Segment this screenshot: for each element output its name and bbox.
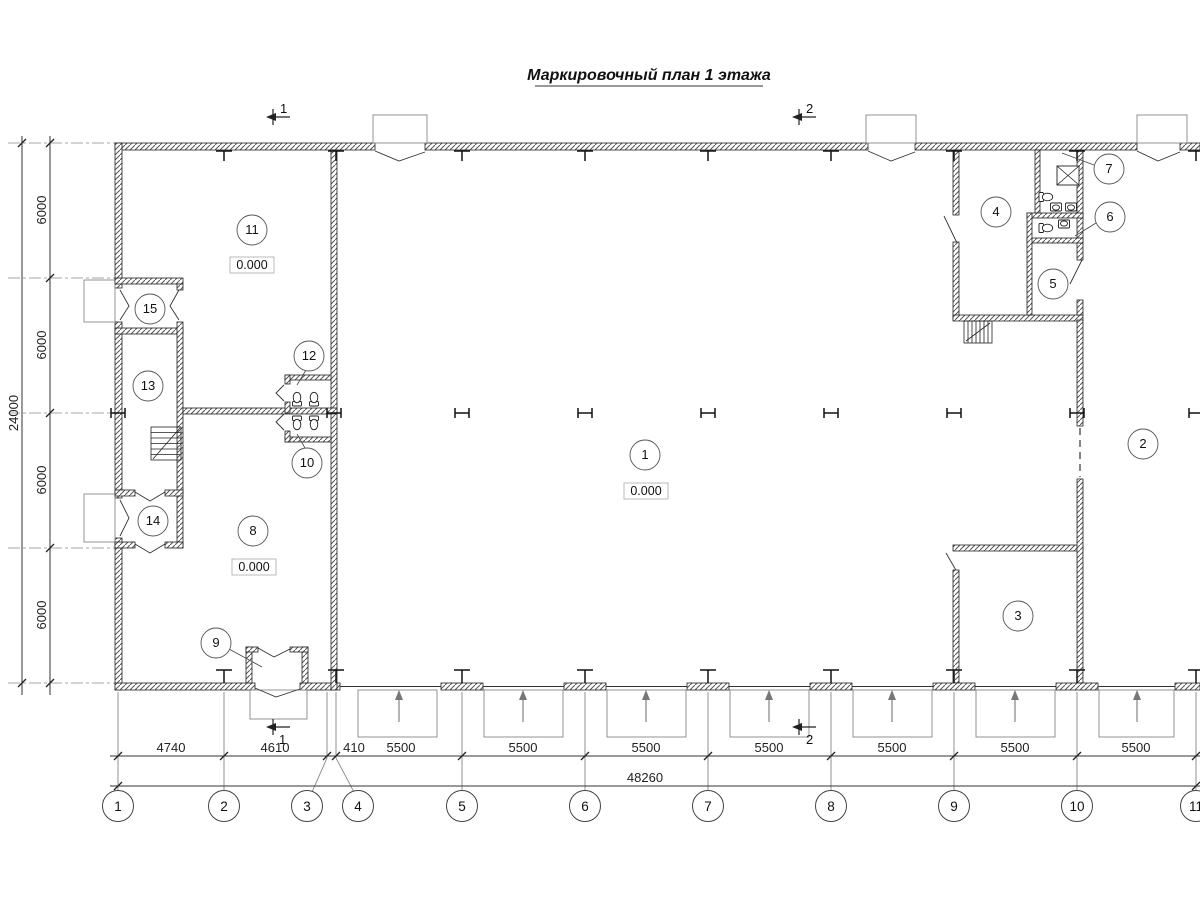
grid-bubble-label: 1 [114,799,122,814]
section-label: 2 [806,732,813,747]
grid-bubble-label: 9 [950,799,958,814]
drawing-title: Маркировочный план 1 этажа [527,67,771,84]
room-number: 15 [143,301,157,316]
columns-top [216,151,1200,161]
room-number: 13 [141,378,155,393]
sink-icon [1066,203,1077,211]
interior-walls-left-block [115,150,337,690]
dim-label: 5500 [1001,740,1030,755]
elevation-label: 0.000 [630,484,661,498]
grid-bubble-label: 10 [1069,799,1084,814]
elevation-label: 0.000 [238,560,269,574]
grid-bubble-label: 6 [581,799,589,814]
grid-bubble-label: 5 [458,799,466,814]
dimensions-left: 6000 6000 6000 6000 24000 [6,136,54,695]
room-number: 6 [1106,209,1113,224]
grid-bubble-label: 3 [303,799,311,814]
dim-label: 5500 [878,740,907,755]
section-marks: 1 2 1 2 [268,101,816,747]
room-number: 14 [146,513,160,528]
bottom-bays [340,683,1200,737]
dim-label: 5500 [632,740,661,755]
fixtures [293,166,1080,430]
grid-bubble-label: 7 [704,799,712,814]
dim-total-label: 48260 [627,770,663,785]
elevation-label: 0.000 [236,258,267,272]
vestibule-room9-walls [246,647,308,683]
sink-icon [1051,203,1062,211]
exterior-walls [115,143,1200,690]
grid-bubble-label: 4 [354,799,362,814]
entrance-arrows [399,692,1137,722]
dim-label: 5500 [387,740,416,755]
room-number: 10 [300,455,314,470]
grid-bubble-label: 11 [1189,799,1200,814]
room-number: 7 [1105,161,1112,176]
wc-icon [310,392,319,406]
grid-bubbles: 1 2 3 4 5 6 7 8 9 10 11 [103,791,1200,822]
dim-label: 4610 [261,740,290,755]
room-number: 2 [1139,436,1146,451]
wc-icon [293,416,302,430]
dim-label: 5500 [755,740,784,755]
dim-total-label: 24000 [6,395,21,431]
section-label: 1 [280,101,287,116]
columns-bottom [216,670,1200,683]
dim-label: 5500 [509,740,538,755]
dim-label: 4740 [157,740,186,755]
wc-icon [1039,224,1053,233]
room-number: 5 [1049,276,1056,291]
wc-icon [310,416,319,430]
axis-lines-left [8,143,116,683]
dim-label: 5500 [1122,740,1151,755]
stair-icon-room4 [964,321,992,343]
wc-icon [293,392,302,406]
room-number: 4 [992,204,999,219]
grid-bubble-label: 8 [827,799,835,814]
floor-plan-canvas: Маркировочный план 1 этажа [0,0,1200,900]
room-number: 12 [302,348,316,363]
dim-label: 6000 [34,601,49,630]
grid-bubble-label: 2 [220,799,228,814]
section-label: 2 [806,101,813,116]
room-number: 11 [245,222,259,237]
room-number: 9 [212,635,219,650]
room-number: 1 [641,447,648,462]
dimensions-bottom: 4740 4610 410 5500 5500 5500 5500 5500 5… [110,740,1200,790]
dim-label: 410 [343,740,365,755]
floor-plan-page: Маркировочный план 1 этажа [0,0,1200,900]
wc-icon [1039,193,1053,202]
dim-label: 6000 [34,331,49,360]
dim-label: 6000 [34,196,49,225]
stair-icon-room13 [151,427,181,460]
room-number: 8 [249,523,256,538]
dim-label: 6000 [34,466,49,495]
room-number: 3 [1014,608,1021,623]
sink-icon [1059,220,1070,228]
